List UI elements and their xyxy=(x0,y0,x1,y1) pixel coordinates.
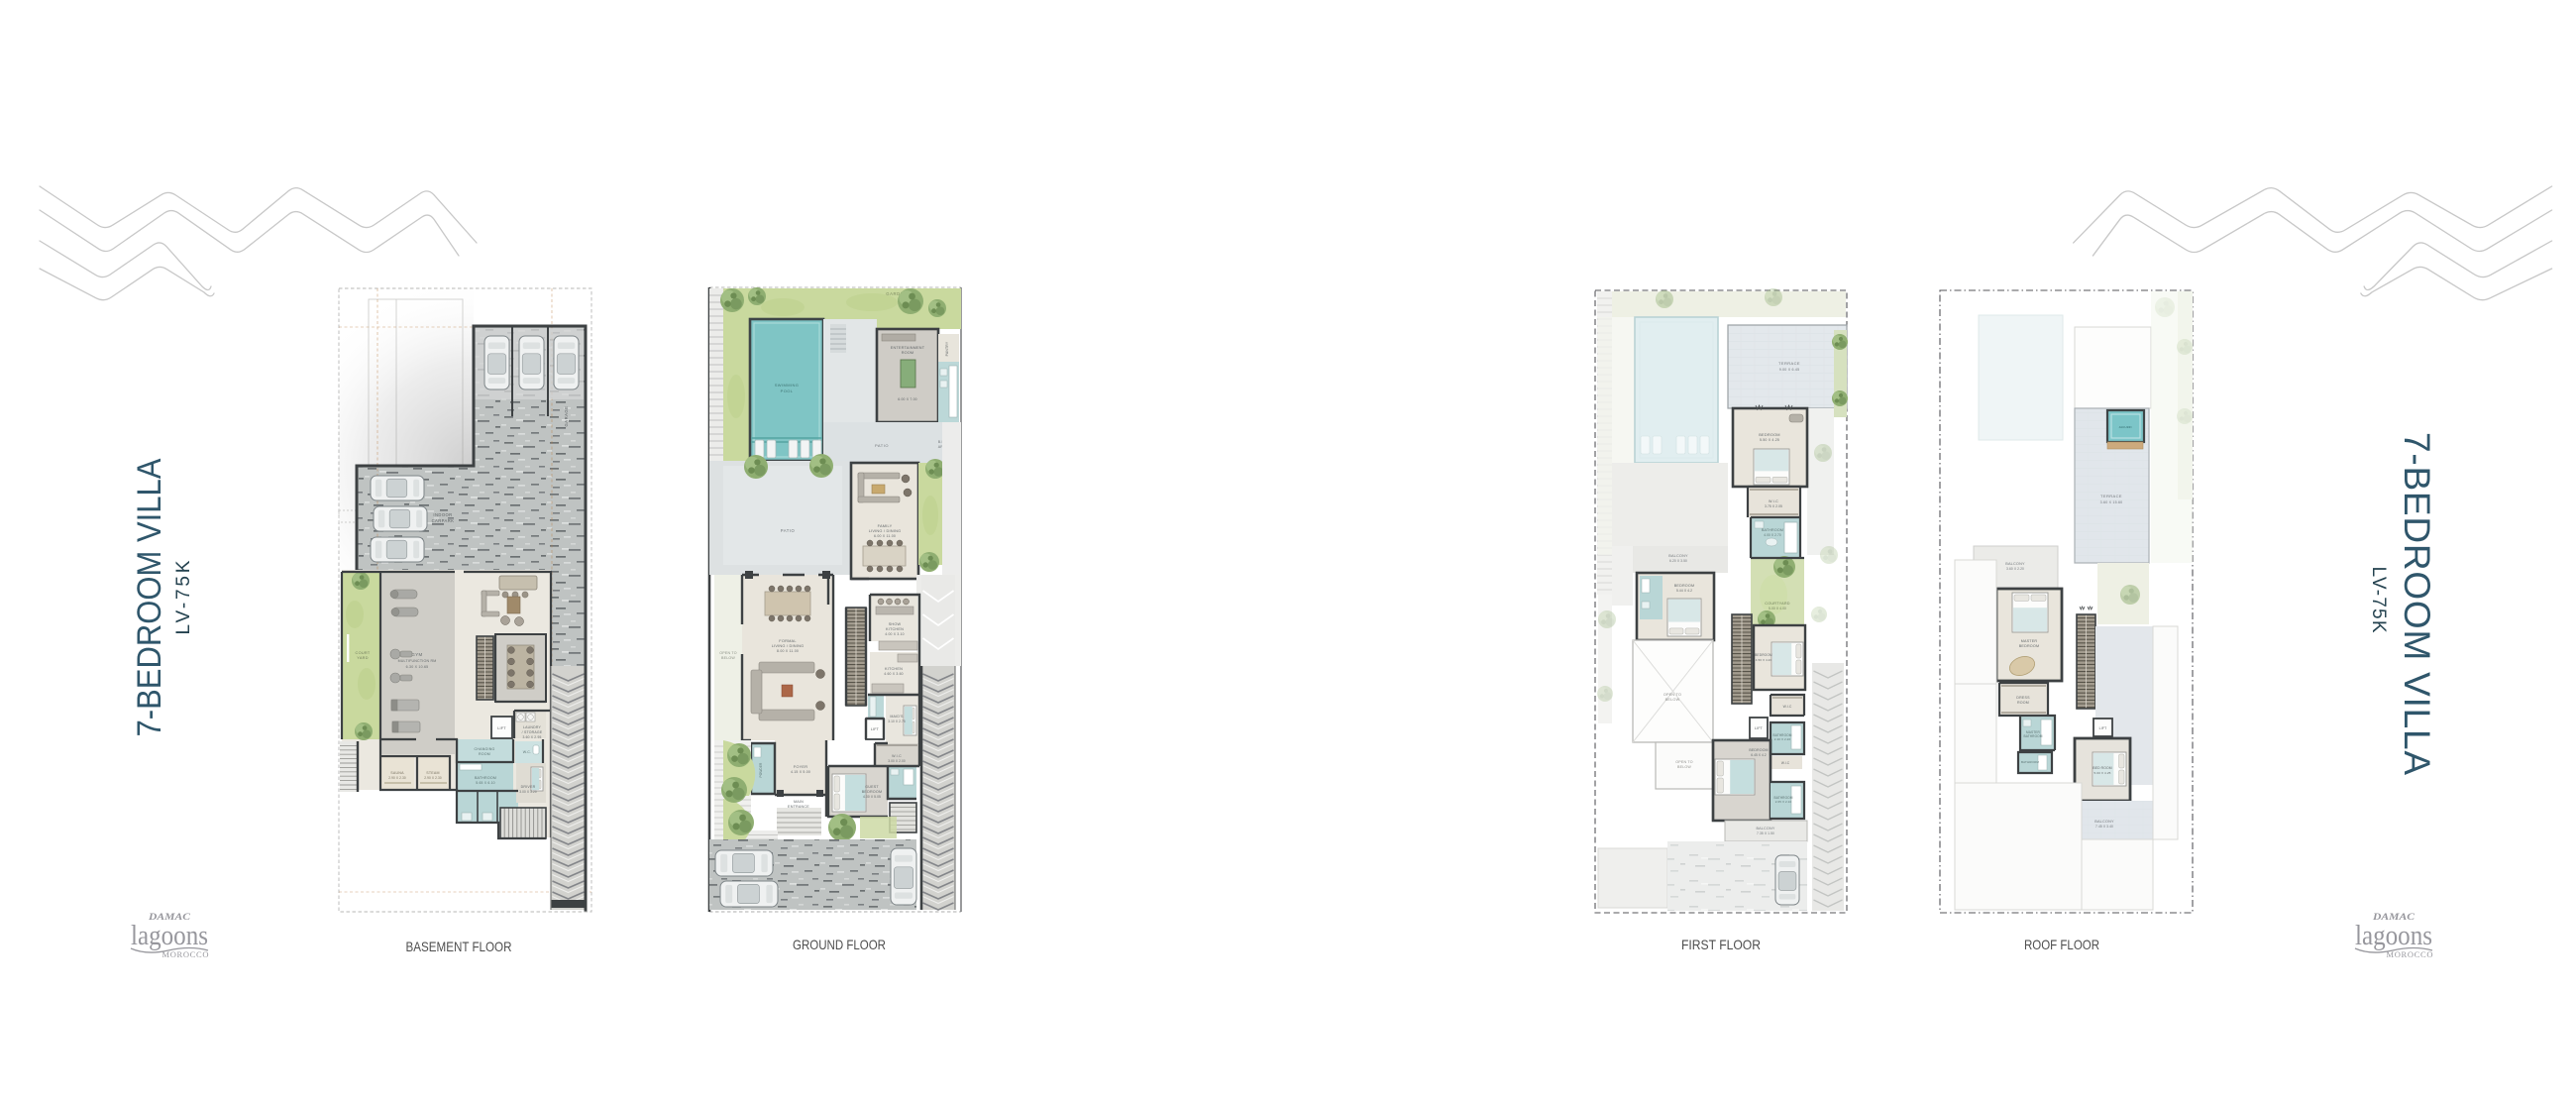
svg-text:BED ROOM: BED ROOM xyxy=(2093,766,2111,770)
svg-text:ROOM: ROOM xyxy=(479,752,490,756)
svg-text:8.00 X 11.00: 8.00 X 11.00 xyxy=(777,649,799,653)
svg-text:LAUNDRY: LAUNDRY xyxy=(523,725,542,729)
svg-text:BEDROOM: BEDROOM xyxy=(1759,432,1780,437)
svg-text:W.I.C: W.I.C xyxy=(1781,761,1790,765)
svg-text:5.00 X 4.25: 5.00 X 4.25 xyxy=(2094,771,2111,775)
svg-text:3.75 X 2.05: 3.75 X 2.05 xyxy=(1765,504,1782,508)
svg-text:3.60 X 2.95: 3.60 X 2.95 xyxy=(522,735,541,739)
svg-text:MULTIFUNCTION RM: MULTIFUNCTION RM xyxy=(398,659,437,663)
svg-text:BATHROOM: BATHROOM xyxy=(475,776,496,780)
svg-text:lagoons: lagoons xyxy=(2355,920,2432,951)
svg-text:CARPARK: CARPARK xyxy=(432,518,455,523)
svg-text:ENTRANCE: ENTRANCE xyxy=(788,805,809,809)
svg-text:CHANGING: CHANGING xyxy=(475,747,495,751)
svg-text:GYM: GYM xyxy=(411,652,422,657)
svg-text:4.00 X 2.70: 4.00 X 2.70 xyxy=(1764,533,1781,537)
svg-text:BATHROOM: BATHROOM xyxy=(1762,528,1783,532)
svg-text:LIFT: LIFT xyxy=(2099,726,2107,730)
svg-text:FIRST FLOOR: FIRST FLOOR xyxy=(1681,937,1761,952)
svg-text:SAUNA: SAUNA xyxy=(390,771,404,775)
svg-text:DRESS: DRESS xyxy=(2016,696,2030,700)
svg-text:MASTER: MASTER xyxy=(2021,639,2038,643)
svg-text:GUEST: GUEST xyxy=(865,785,879,789)
svg-text:6.00 X 11.00: 6.00 X 11.00 xyxy=(874,534,896,538)
svg-text:MOROCCO: MOROCCO xyxy=(162,949,209,959)
svg-text:3.10 X 2.75: 3.10 X 2.75 xyxy=(888,720,906,723)
svg-text:2.90 X 2.30: 2.90 X 2.30 xyxy=(388,776,406,780)
svg-text:BEDROOM: BEDROOM xyxy=(1674,584,1694,588)
svg-text:7-BEDROOM VILLA: 7-BEDROOM VILLA xyxy=(131,458,168,736)
svg-text:PATIO: PATIO xyxy=(781,528,796,533)
svg-text:BALCONY: BALCONY xyxy=(2005,562,2025,566)
svg-text:KITCHEN: KITCHEN xyxy=(885,667,903,671)
svg-text:W.I.C: W.I.C xyxy=(1783,705,1792,709)
svg-text:BEDROOM: BEDROOM xyxy=(862,790,882,794)
svg-text:2.90 X 2.30: 2.90 X 2.30 xyxy=(424,776,442,780)
svg-text:5.50 X 4.25: 5.50 X 4.25 xyxy=(1760,438,1779,442)
svg-text:ROOM: ROOM xyxy=(902,351,914,355)
svg-text:BELOW: BELOW xyxy=(721,656,735,660)
svg-text:6.30 X 10.65: 6.30 X 10.65 xyxy=(406,665,429,669)
svg-text:ENTERTAINMENT: ENTERTAINMENT xyxy=(891,346,925,350)
svg-text:6.45 X 4.2: 6.45 X 4.2 xyxy=(1751,753,1767,757)
svg-text:W.I.C: W.I.C xyxy=(892,754,902,758)
svg-text:COURTYARD: COURTYARD xyxy=(1765,602,1790,606)
svg-text:PANTRY: PANTRY xyxy=(945,341,949,356)
svg-text:3.00 X 2.00: 3.00 X 2.00 xyxy=(888,759,906,763)
svg-text:MOROCCO: MOROCCO xyxy=(2387,949,2433,959)
svg-text:YARD: YARD xyxy=(357,656,368,660)
svg-text:LV-75K: LV-75K xyxy=(173,560,194,634)
svg-text:7.35 X 1.50: 7.35 X 1.50 xyxy=(1757,831,1774,835)
svg-text:GROUND FLOOR: GROUND FLOOR xyxy=(793,937,886,952)
svg-text:BASEMENT FLOOR: BASEMENT FLOOR xyxy=(406,939,512,954)
svg-text:6.20 X 3.50: 6.20 X 3.50 xyxy=(1669,559,1687,563)
svg-text:INDOOR: INDOOR xyxy=(433,512,452,517)
svg-text:lagoons: lagoons xyxy=(131,920,208,951)
svg-text:JACUZZI: JACUZZI xyxy=(2118,425,2131,429)
svg-text:OPEN TO: OPEN TO xyxy=(719,651,736,655)
svg-text:BEDROOM: BEDROOM xyxy=(1755,653,1772,657)
svg-text:BELOW: BELOW xyxy=(1677,765,1691,769)
svg-text:KITCHEN: KITCHEN xyxy=(886,627,904,631)
svg-text:BATHROOM: BATHROOM xyxy=(2021,760,2039,764)
svg-text:3.60 X 15.60: 3.60 X 15.60 xyxy=(2100,500,2123,504)
svg-text:2.40 X 2.20: 2.40 X 2.20 xyxy=(1774,737,1791,741)
svg-text:MAID'S: MAID'S xyxy=(890,715,904,719)
svg-text:POWDER: POWDER xyxy=(759,762,763,778)
svg-text:4.15 X 5.00: 4.15 X 5.00 xyxy=(791,770,810,774)
svg-text:OPEN TO: OPEN TO xyxy=(1664,693,1681,697)
svg-text:BELOW: BELOW xyxy=(1665,698,1680,702)
svg-text:3.00 X 3.20: 3.00 X 3.20 xyxy=(519,790,537,794)
svg-text:DRIVER: DRIVER xyxy=(521,785,536,789)
svg-text:/ STORAGE: / STORAGE xyxy=(522,730,543,734)
svg-text:LIVING / DINING: LIVING / DINING xyxy=(869,528,902,533)
svg-text:BALCONY: BALCONY xyxy=(1756,827,1774,830)
svg-text:SWIMMING: SWIMMING xyxy=(775,383,800,387)
svg-text:W.I.C: W.I.C xyxy=(1769,499,1778,503)
svg-text:LIVING / DINING: LIVING / DINING xyxy=(772,643,805,648)
svg-text:BEDROOM: BEDROOM xyxy=(2019,644,2039,648)
svg-text:ROOM: ROOM xyxy=(2017,701,2029,705)
svg-text:LIFT: LIFT xyxy=(871,727,880,731)
svg-text:STEAM: STEAM xyxy=(426,771,439,775)
svg-text:5.44 X 4.2: 5.44 X 4.2 xyxy=(1676,589,1692,593)
svg-text:3.60 X 2.20: 3.60 X 2.20 xyxy=(2006,567,2024,571)
svg-text:TERRACE: TERRACE xyxy=(1778,361,1800,366)
svg-text:5.65 X 6.10: 5.65 X 6.10 xyxy=(476,781,495,785)
svg-text:BALCONY: BALCONY xyxy=(1668,554,1688,558)
svg-text:7.45 X 3.40: 7.45 X 3.40 xyxy=(2095,825,2113,829)
svg-text:LV-75K: LV-75K xyxy=(2368,567,2389,633)
svg-text:PATIO: PATIO xyxy=(875,443,889,448)
svg-text:4.50 X 4.20: 4.50 X 4.20 xyxy=(1756,658,1772,662)
svg-text:6.00 X 7.00: 6.00 X 7.00 xyxy=(898,397,917,401)
svg-text:GARAGE: GARAGE xyxy=(564,406,569,427)
svg-text:SHOW: SHOW xyxy=(889,622,902,626)
svg-text:5.00 X 4.00: 5.00 X 4.00 xyxy=(1769,607,1786,610)
svg-text:TERRACE: TERRACE xyxy=(2100,494,2122,498)
svg-text:POOL: POOL xyxy=(781,388,794,393)
svg-text:BEDROOM: BEDROOM xyxy=(1749,748,1768,752)
svg-text:7-BEDROOM VILLA: 7-BEDROOM VILLA xyxy=(2397,432,2437,775)
svg-text:4.00 X 5.05: 4.00 X 5.05 xyxy=(863,795,881,799)
svg-text:ROOF FLOOR: ROOF FLOOR xyxy=(2024,937,2099,952)
svg-text:OPEN TO: OPEN TO xyxy=(1675,760,1692,764)
svg-text:LIFT: LIFT xyxy=(497,726,506,730)
svg-text:2.65 X 2.10: 2.65 X 2.10 xyxy=(1775,800,1792,804)
svg-text:BATHROOM: BATHROOM xyxy=(2024,734,2043,738)
svg-text:MAIN: MAIN xyxy=(794,800,804,804)
svg-text:BALCONY: BALCONY xyxy=(2094,820,2114,824)
svg-text:4.00 X 3.10: 4.00 X 3.10 xyxy=(885,632,905,636)
svg-text:4.60 X 3.60: 4.60 X 3.60 xyxy=(884,672,904,676)
svg-text:LIFT: LIFT xyxy=(1755,726,1764,730)
svg-text:W.C.: W.C. xyxy=(523,750,532,754)
svg-text:FOYER: FOYER xyxy=(794,764,807,769)
svg-text:9.00 X 6.45: 9.00 X 6.45 xyxy=(1779,368,1800,372)
svg-text:COURT: COURT xyxy=(356,651,371,655)
